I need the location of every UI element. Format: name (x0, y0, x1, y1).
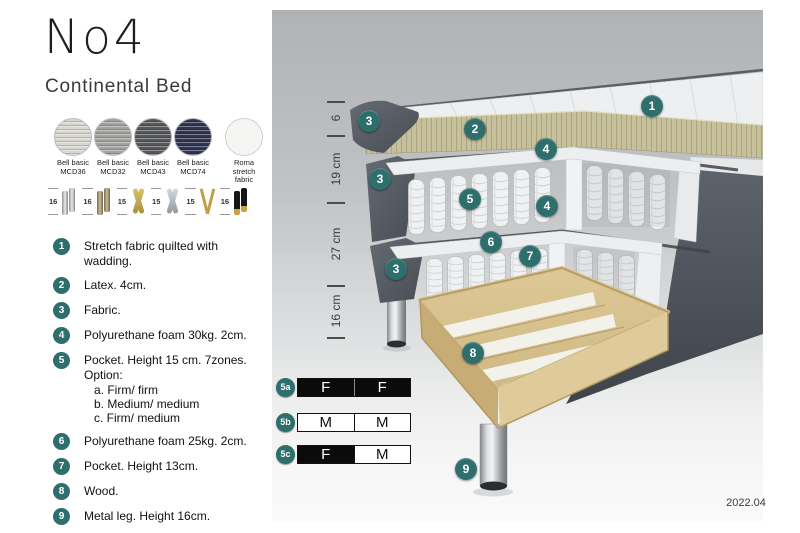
swatch-label: Bell basic MCD32 (93, 159, 133, 176)
fabric-swatch-circle (94, 118, 132, 156)
feature-main-text: Pocket. Height 13cm. (84, 459, 198, 474)
dimension-ruler: 619 cm27 cm16 cm (326, 101, 346, 337)
fabric-swatch-circle (174, 118, 212, 156)
leg-options-row: 16 16 15 15 15 16 (48, 186, 254, 216)
feature-item: 9 Metal leg. Height 16cm. (53, 508, 268, 525)
dimension-label: 19 cm (329, 152, 343, 185)
swatch-label: Bell basic MCD74 (173, 159, 213, 176)
feature-main-text: Stretch fabric quilted with wadding. (84, 239, 268, 269)
leg-height-label: 15 (117, 188, 127, 215)
dimension-label: 6 (329, 115, 343, 122)
feature-item: 2 Latex. 4cm. (53, 277, 268, 294)
feature-item: 4 Polyurethane foam 30kg. 2cm. (53, 327, 268, 344)
fabric-swatch-circle (225, 118, 263, 156)
swatch-code: stretch fabric (224, 168, 264, 185)
feature-number-badge: 1 (53, 238, 70, 255)
leg-shape (62, 191, 68, 215)
feature-item: 3 Fabric. (53, 302, 268, 319)
feature-number-badge: 4 (53, 327, 70, 344)
leg-option: 15 (151, 186, 182, 216)
firmness-row-badge: 5b (276, 413, 295, 432)
ruler-tick (327, 101, 345, 103)
leg-shape (104, 188, 110, 212)
fabric-swatch: Bell basic MCD43 (133, 118, 173, 176)
version-label: 2022.04 (706, 497, 786, 509)
callout-badge: 5 (459, 188, 481, 210)
fabric-swatch-row: Bell basic MCD36 Bell basic MCD32 Bell b… (53, 118, 264, 185)
leg-option: 15 (117, 186, 148, 216)
feature-sub-option: c. Firm/ medium (94, 411, 268, 425)
feature-list: 1 Stretch fabric quilted with wadding. 2… (53, 238, 268, 533)
leg-option: 16 (48, 186, 79, 216)
fabric-swatch: Bell basic MCD36 (53, 118, 93, 176)
firmness-row-badge: 5c (276, 445, 295, 464)
fabric-swatch: Bell basic MCD32 (93, 118, 133, 176)
feature-number-badge: 9 (53, 508, 70, 525)
feature-text: Pocket. Height 15 cm. 7zones. Option: a.… (84, 352, 268, 425)
feature-text: Stretch fabric quilted with wadding. (84, 238, 268, 269)
feature-text: Latex. 4cm. (84, 277, 146, 293)
fabric-swatch-circle (134, 118, 172, 156)
swatch-code: MCD43 (133, 168, 173, 177)
ruler-tick (327, 135, 345, 137)
firmness-bar: FM (297, 445, 411, 464)
feature-number-badge: 5 (53, 352, 70, 369)
firmness-bar: MM (297, 413, 411, 432)
callout-badge: 7 (519, 245, 541, 267)
metal-leg-front (473, 424, 513, 497)
leg-icon (60, 186, 79, 216)
feature-text: Wood. (84, 483, 118, 499)
leg-option: 16 (220, 186, 251, 216)
firmness-cell: F (298, 379, 354, 396)
leg-shape (69, 188, 75, 212)
leg-height-label: 15 (151, 188, 161, 215)
callout-badge: 3 (385, 258, 407, 280)
callout-badge: 1 (641, 95, 663, 117)
page-title: No4 (44, 14, 147, 61)
leg-icon (163, 186, 182, 216)
fabric-swatch: Roma stretch fabric (224, 118, 264, 185)
leg-height-label: 16 (82, 188, 92, 215)
swatch-label: Bell basic MCD36 (53, 159, 93, 176)
swatch-code: MCD32 (93, 168, 133, 177)
feature-main-text: Pocket. Height 15 cm. 7zones. Option: (84, 353, 268, 383)
feature-main-text: Fabric. (84, 303, 121, 318)
firmness-cell: M (298, 414, 354, 431)
feature-text: Fabric. (84, 302, 121, 318)
swatch-label: Roma stretch fabric (224, 159, 264, 185)
product-subtitle: Continental Bed (45, 76, 192, 98)
callout-badge: 2 (464, 118, 486, 140)
leg-height-label: 16 (220, 188, 230, 215)
feature-sub-option: a. Firm/ firm (94, 383, 268, 397)
feature-item: 5 Pocket. Height 15 cm. 7zones. Option: … (53, 352, 268, 425)
firmness-cell: F (354, 379, 411, 396)
feature-item: 8 Wood. (53, 483, 268, 500)
ruler-tick (327, 285, 345, 287)
callout-badge: 8 (462, 342, 484, 364)
leg-icon (129, 186, 148, 216)
feature-text: Pocket. Height 13cm. (84, 458, 198, 474)
feature-number-badge: 7 (53, 458, 70, 475)
dimension-label: 16 cm (329, 295, 343, 328)
pocket-springs-middle (366, 147, 700, 242)
firmness-cell: M (354, 414, 411, 431)
feature-main-text: Metal leg. Height 16cm. (84, 509, 210, 524)
callout-badge: 4 (536, 195, 558, 217)
info-panel: No4 Continental Bed Bell basic MCD36 Bel… (0, 0, 272, 533)
metal-leg-back (383, 294, 411, 352)
feature-sub-options: a. Firm/ firmb. Medium/ mediumc. Firm/ m… (84, 383, 268, 425)
firmness-cell: M (354, 446, 411, 463)
leg-shape (234, 191, 240, 215)
swatch-code: MCD36 (53, 168, 93, 177)
feature-sub-option: b. Medium/ medium (94, 397, 268, 411)
leg-icon (95, 186, 114, 216)
feature-main-text: Polyurethane foam 30kg. 2cm. (84, 328, 247, 343)
firmness-bar: FF (297, 378, 411, 397)
bed-spec-sheet: No4 Continental Bed Bell basic MCD36 Bel… (0, 0, 800, 533)
leg-shape (241, 188, 247, 212)
leg-height-label: 15 (185, 188, 195, 215)
feature-main-text: Polyurethane foam 25kg. 2cm. (84, 434, 247, 449)
fabric-swatch: Bell basic MCD74 (173, 118, 213, 176)
feature-item: 1 Stretch fabric quilted with wadding. (53, 238, 268, 269)
feature-main-text: Wood. (84, 484, 118, 499)
feature-number-badge: 2 (53, 277, 70, 294)
callout-badge: 9 (455, 458, 477, 480)
dimension-label: 27 cm (329, 227, 343, 260)
callout-badge: 6 (480, 231, 502, 253)
leg-shape (199, 188, 208, 214)
feature-item: 7 Pocket. Height 13cm. (53, 458, 268, 475)
leg-shape (97, 191, 103, 215)
leg-icon (232, 186, 251, 216)
callout-badge: 3 (358, 110, 380, 132)
firmness-row-badge: 5a (276, 378, 295, 397)
swatch-label: Bell basic MCD43 (133, 159, 173, 176)
leg-option: 16 (82, 186, 113, 216)
leg-height-label: 16 (48, 188, 58, 215)
feature-text: Polyurethane foam 25kg. 2cm. (84, 433, 247, 449)
swatch-code: MCD74 (173, 168, 213, 177)
callout-badge: 4 (535, 138, 557, 160)
feature-text: Polyurethane foam 30kg. 2cm. (84, 327, 247, 343)
firmness-cell: F (298, 446, 354, 463)
feature-item: 6 Polyurethane foam 25kg. 2cm. (53, 433, 268, 450)
leg-option: 15 (185, 186, 216, 216)
leg-icon (198, 186, 217, 216)
feature-number-badge: 6 (53, 433, 70, 450)
ruler-tick (327, 202, 345, 204)
ruler-tick (327, 337, 345, 339)
feature-text: Metal leg. Height 16cm. (84, 508, 210, 524)
feature-number-badge: 3 (53, 302, 70, 319)
feature-main-text: Latex. 4cm. (84, 278, 146, 293)
feature-number-badge: 8 (53, 483, 70, 500)
fabric-swatch-circle (54, 118, 92, 156)
callout-badge: 3 (369, 168, 391, 190)
